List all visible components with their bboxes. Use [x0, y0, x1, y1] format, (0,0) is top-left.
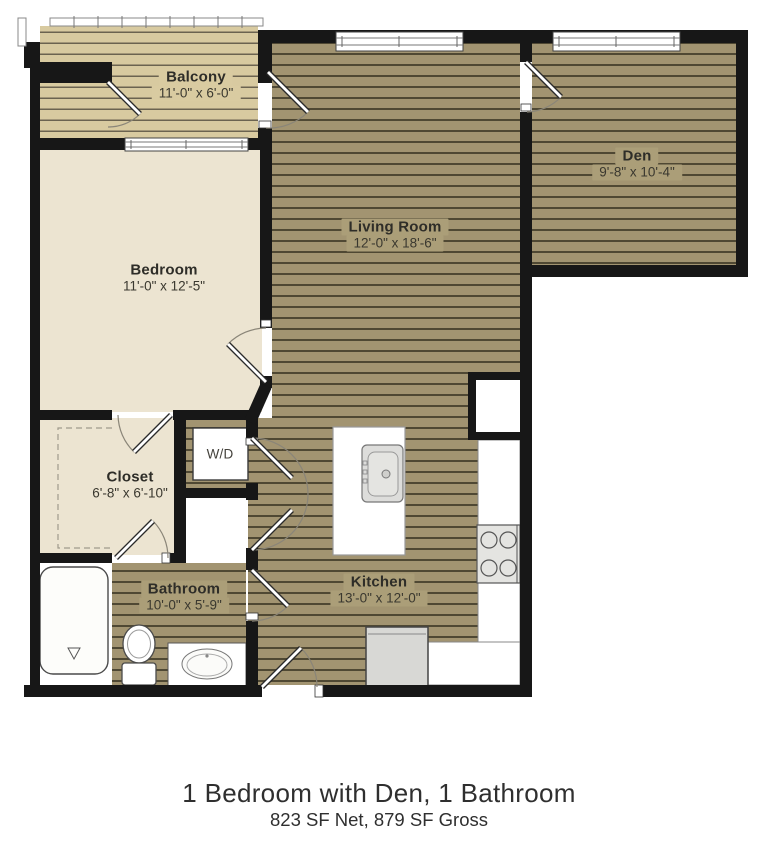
wall [246, 548, 258, 570]
wall-bottom [24, 685, 262, 697]
wall-niche [468, 432, 520, 440]
door-stop [259, 121, 271, 128]
wall-closet-bottom [30, 553, 112, 563]
window-bedroom [125, 138, 248, 151]
wall [248, 138, 272, 150]
floor-plan: Balcony 11'-0" x 6'-0" Den 9'-8" x 10'-4… [0, 0, 758, 710]
door-stop [261, 320, 271, 327]
wall [168, 553, 186, 563]
door-stop [162, 553, 170, 563]
wall [246, 621, 258, 687]
vanity-faucet [205, 654, 208, 657]
wall-bedroom-right [260, 150, 272, 328]
washer-dryer [193, 428, 248, 480]
wall [246, 483, 258, 500]
wall-closet-right [174, 418, 186, 563]
bathtub [40, 567, 108, 674]
closet-floor [40, 418, 176, 555]
door-stop [521, 104, 531, 111]
window-living [336, 32, 463, 51]
wall-den-right [736, 43, 748, 277]
caption-title: 1 Bedroom with Den, 1 Bathroom [0, 778, 758, 808]
floor-plan-page: { "plan": { "rooms": [ {"name": "Balcony… [0, 0, 758, 856]
wall-wd-bottom [186, 488, 256, 498]
wall-kitchen-right [520, 277, 532, 697]
wall-den-bottom [520, 265, 748, 277]
wall-bottom [323, 685, 532, 697]
counter-bottom [428, 642, 520, 685]
wall-den-divider [520, 120, 532, 277]
door-stop [246, 613, 258, 620]
wall-bedroom-bottom [30, 410, 112, 420]
caption-subtitle: 823 SF Net, 879 SF Gross [0, 808, 758, 832]
wall-niche [468, 372, 476, 440]
toilet-tank [122, 663, 156, 685]
caption: 1 Bedroom with Den, 1 Bathroom 823 SF Ne… [0, 778, 758, 832]
wall [520, 43, 532, 62]
pantry-niche [476, 380, 520, 432]
floors [40, 26, 736, 685]
wall-bedroom-top [40, 138, 125, 150]
island-faucet [382, 470, 390, 478]
wall-left [30, 66, 40, 697]
bedroom-floor [40, 150, 262, 412]
wall-balcony-stub [40, 62, 112, 83]
refrigerator [366, 627, 428, 688]
wall [520, 112, 532, 120]
window-den [553, 32, 680, 51]
floor-plan-svg [0, 0, 758, 710]
den-floor [532, 43, 736, 265]
door-stop [315, 685, 323, 697]
